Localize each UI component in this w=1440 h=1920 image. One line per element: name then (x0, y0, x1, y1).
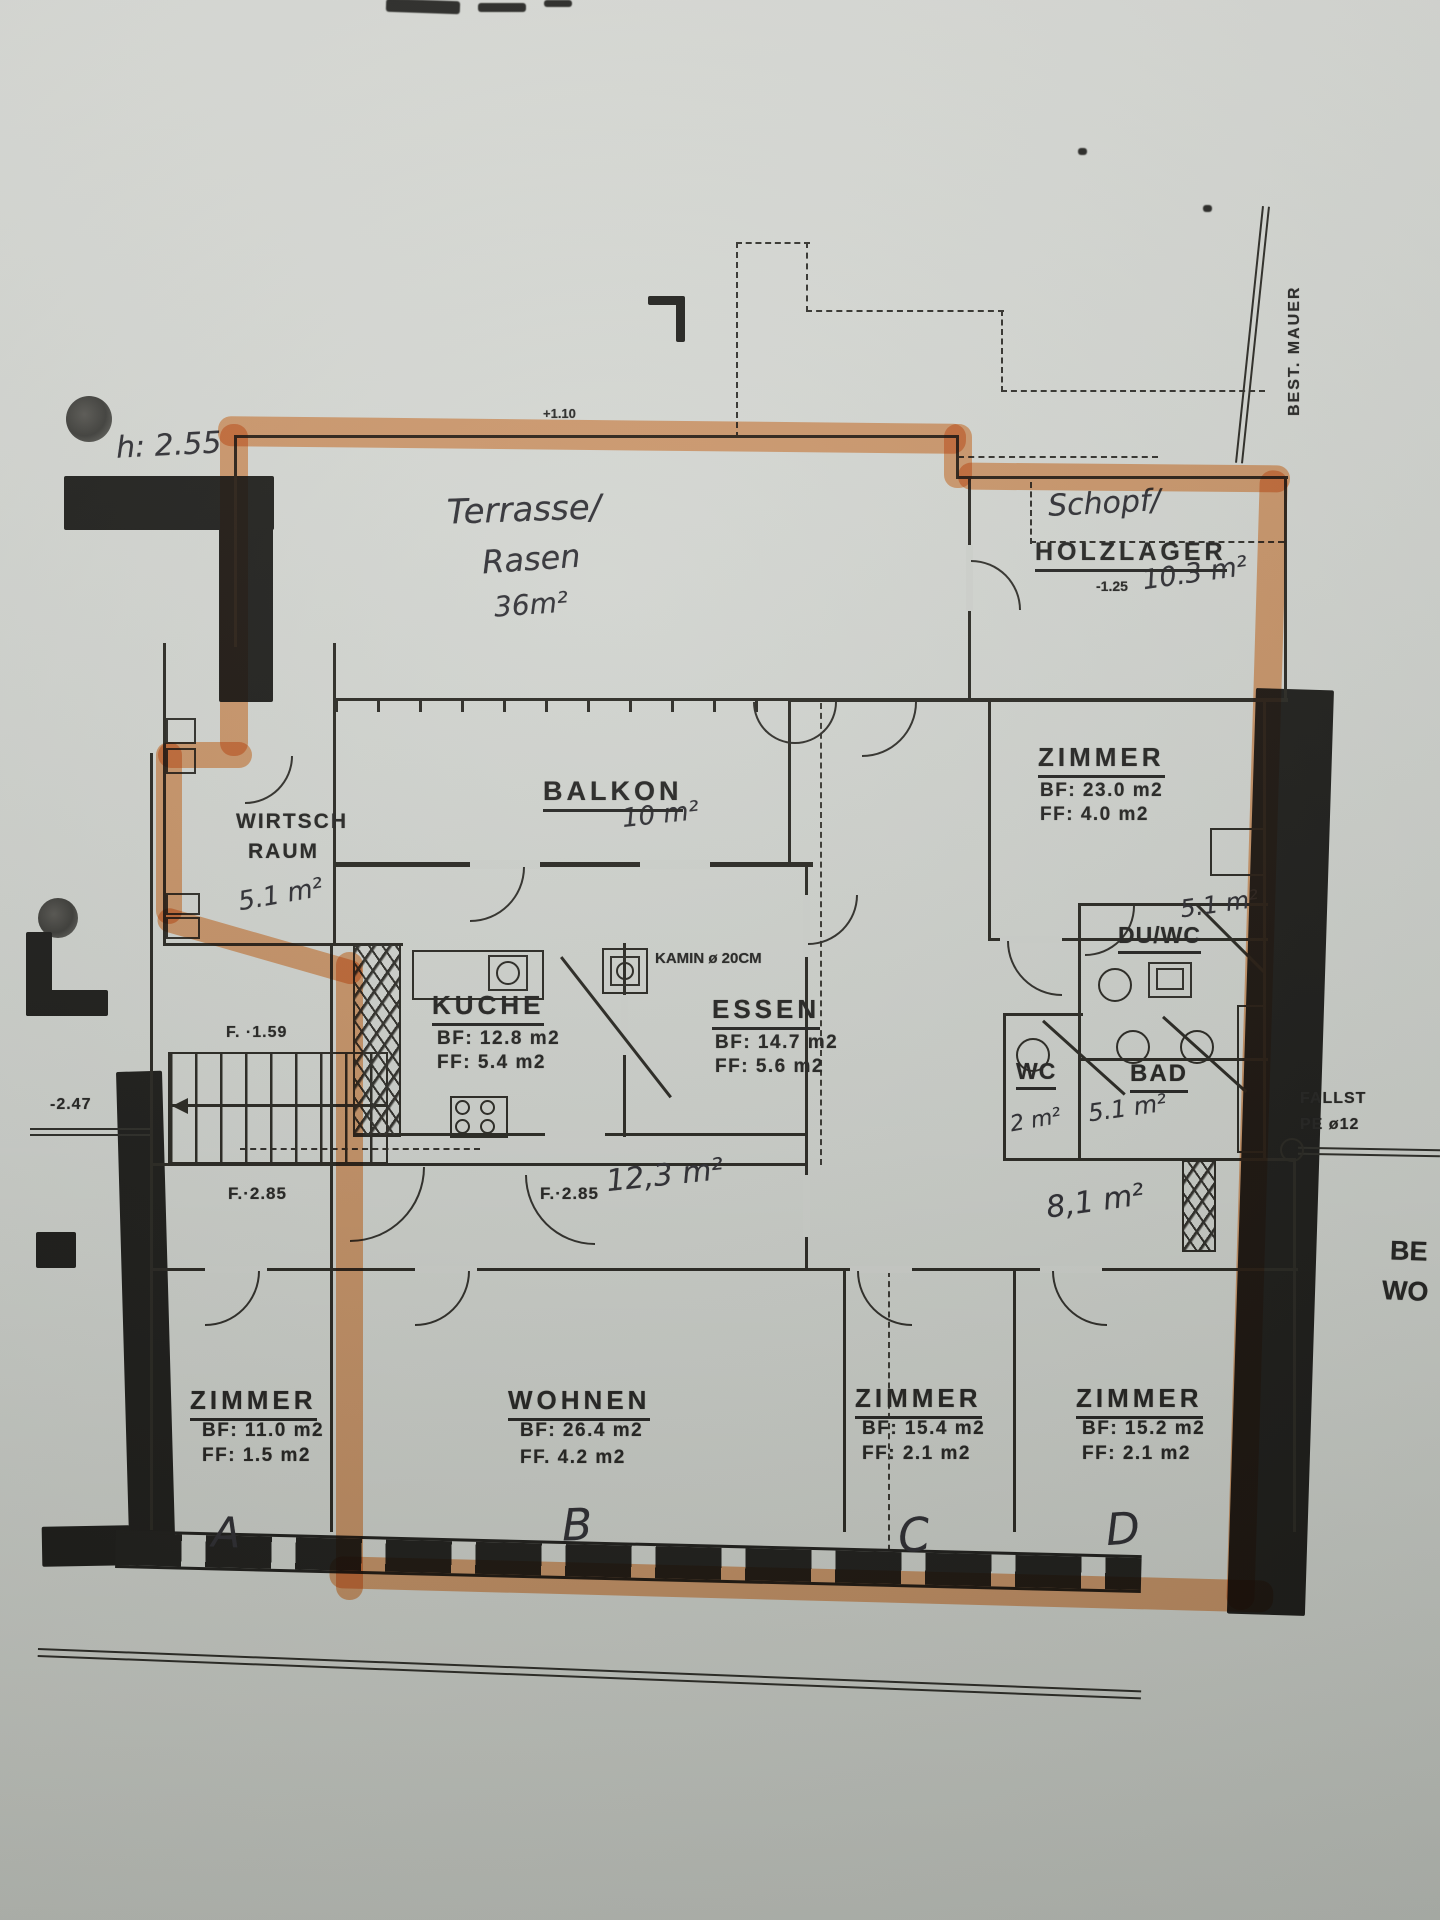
room-bf-wohnen: BF: 26.4 m2 (520, 1420, 643, 1442)
door-arc (205, 1271, 260, 1326)
room-letter-b: B (561, 1499, 593, 1551)
terrace-area: 36m² (493, 585, 569, 623)
pipe-symbol (1280, 1138, 1304, 1162)
door-opening (803, 1175, 810, 1237)
scan-artifact (478, 3, 526, 12)
room-bf-zimmer-a: BF: 11.0 m2 (202, 1420, 324, 1442)
room-name-wc: WC (1016, 1058, 1056, 1090)
room-bf-zimmer-c: BF: 15.4 m2 (862, 1418, 985, 1440)
stair-arrow (172, 1098, 188, 1114)
dashed-line (1030, 482, 1032, 544)
floorplan-scan: BEST. MAUER (0, 0, 1440, 1920)
wall-black (26, 990, 108, 1016)
stove-burner (480, 1119, 495, 1134)
dashed-line (736, 242, 738, 438)
room-ff-wohnen: FF. 4.2 m2 (520, 1447, 626, 1469)
terrace-label-1: Terrasse/ (446, 487, 601, 532)
terrace-label-2: Rasen (481, 537, 582, 582)
door-opening (621, 995, 628, 1055)
scan-artifact (1078, 148, 1087, 155)
highlight-schopf-top (958, 463, 1290, 493)
wall (1003, 1013, 1083, 1016)
dashed-line (806, 310, 1004, 312)
scan-artifact (1203, 205, 1212, 212)
level-stair: F. ·1.59 (226, 1024, 287, 1042)
balcony-railing (335, 698, 790, 712)
room-name-duwc: DU/WC (1118, 922, 1201, 954)
door-arc (470, 867, 525, 922)
wall (1003, 1013, 1006, 1161)
highlight-wirtsch-left (156, 742, 182, 924)
shaft-hatched (1182, 1160, 1216, 1252)
wall (335, 862, 813, 867)
room-name-wohnen: WOHNEN (508, 1385, 650, 1421)
level-line (30, 1128, 152, 1136)
punch-hole (66, 396, 112, 442)
room-ff-kueche: FF: 5.4 m2 (437, 1052, 546, 1074)
holzlager-level: -1.25 (1096, 578, 1128, 594)
wirtsch-label-2: RAUM (248, 840, 319, 864)
wall (333, 643, 336, 946)
scan-artifact (386, 0, 460, 14)
dashed-line (958, 456, 1158, 458)
scan-artifact (544, 0, 572, 7)
room-name-zimmer-a: ZIMMER (190, 1385, 317, 1421)
balkon-label: BALKON (543, 776, 683, 812)
wall (330, 1268, 333, 1532)
stove-burner (480, 1100, 495, 1115)
best-mauer-label: BEST. MAUER (1286, 276, 1304, 416)
height-note: h: 2.55 (115, 425, 222, 465)
highlight-left-long (336, 952, 363, 1600)
wall-black (116, 1071, 176, 1564)
wall (988, 698, 991, 941)
dashed-line (1001, 310, 1003, 392)
door-opening (545, 1131, 605, 1138)
door-arc (1007, 941, 1062, 996)
room-ff-essen: FF: 5.6 m2 (715, 1056, 824, 1078)
kamin-flue (616, 962, 634, 980)
door-arc (795, 702, 837, 744)
door-arc (971, 560, 1021, 610)
hall-area-right: 8,1 m² (1044, 1177, 1146, 1225)
door-arc (1052, 1271, 1107, 1326)
door-arc (753, 702, 795, 744)
dashed-line (806, 242, 808, 312)
toilet (1098, 968, 1132, 1002)
wirtsch-label-1: WIRTSCH (236, 810, 348, 834)
stove-burner (455, 1100, 470, 1115)
room-bf-kueche: BF: 12.8 m2 (437, 1028, 560, 1050)
highlight-terrace-left (220, 424, 248, 756)
sink-inner (1156, 968, 1184, 990)
wall (1078, 903, 1081, 1161)
holzlager-label: HOLZLAGER (1035, 538, 1227, 572)
room-letter-d: D (1104, 1503, 1141, 1556)
wall-mark (676, 296, 685, 342)
dashed-line (1001, 390, 1265, 392)
room-name-zimmer-d: ZIMMER (1076, 1383, 1203, 1419)
wall (843, 1268, 846, 1532)
hall-area-mid: 12,3 m² (604, 1152, 725, 1199)
door-arc (415, 1271, 470, 1326)
wall (150, 753, 153, 1530)
room-bf-essen: BF: 14.7 m2 (715, 1032, 838, 1054)
room-ff-zimmer-d: FF: 2.1 m2 (1082, 1443, 1191, 1465)
kamin-label: KAMIN ø 20CM (655, 950, 762, 967)
fallstrang-label-2: PE ø12 (1300, 1116, 1359, 1134)
appliance (166, 718, 196, 744)
room-name-essen: ESSEN (712, 994, 820, 1030)
room-bf-zimmer-d: BF: 15.2 m2 (1082, 1418, 1205, 1440)
terrain-line (38, 1648, 1142, 1699)
stove-burner (455, 1119, 470, 1134)
door-arc (862, 702, 917, 757)
highlight-top (218, 416, 966, 454)
best-mauer-line (1235, 206, 1270, 463)
room-bf-zimmer-ne: BF: 23.0 m2 (1040, 780, 1163, 802)
door-arc (857, 1271, 912, 1326)
room-ff-zimmer-ne: FF: 4.0 m2 (1040, 804, 1149, 826)
sink-basin (1116, 1030, 1150, 1064)
dashed-line (736, 242, 810, 244)
room-name-bad: BAD (1130, 1060, 1188, 1093)
fallstrang-label-1: FALLST (1300, 1090, 1366, 1108)
edge-label-1: BE (1389, 1235, 1428, 1267)
room-name-zimmer-ne: ZIMMER (1038, 742, 1165, 778)
room-letter-a: A (211, 1508, 241, 1558)
room-ff-zimmer-a: FF: 1.5 m2 (202, 1445, 311, 1467)
wirtsch-area: 5.1 m² (236, 873, 325, 917)
wc-area: 2 m² (1008, 1104, 1063, 1138)
wall (1293, 1158, 1296, 1532)
bad-area: 5.1 m² (1086, 1089, 1168, 1128)
room-ff-zimmer-c: FF: 2.1 m2 (862, 1443, 971, 1465)
room-letter-c: C (895, 1506, 933, 1563)
wall-black (36, 1232, 76, 1268)
wall (1013, 1268, 1016, 1532)
level-left: -2.47 (50, 1096, 91, 1114)
door-arc (245, 756, 293, 804)
level-f285-left: F.·2.85 (228, 1184, 287, 1204)
wall (150, 1268, 1298, 1271)
room-name-zimmer-c: ZIMMER (855, 1383, 982, 1419)
level-f285-mid: F.·2.85 (540, 1184, 599, 1204)
kitchen-sink-basin (496, 961, 520, 985)
room-name-kueche: KUCHE (432, 990, 544, 1026)
window-opening (640, 860, 710, 869)
door-arc (808, 895, 858, 945)
edge-label-2: WO (1381, 1275, 1429, 1308)
